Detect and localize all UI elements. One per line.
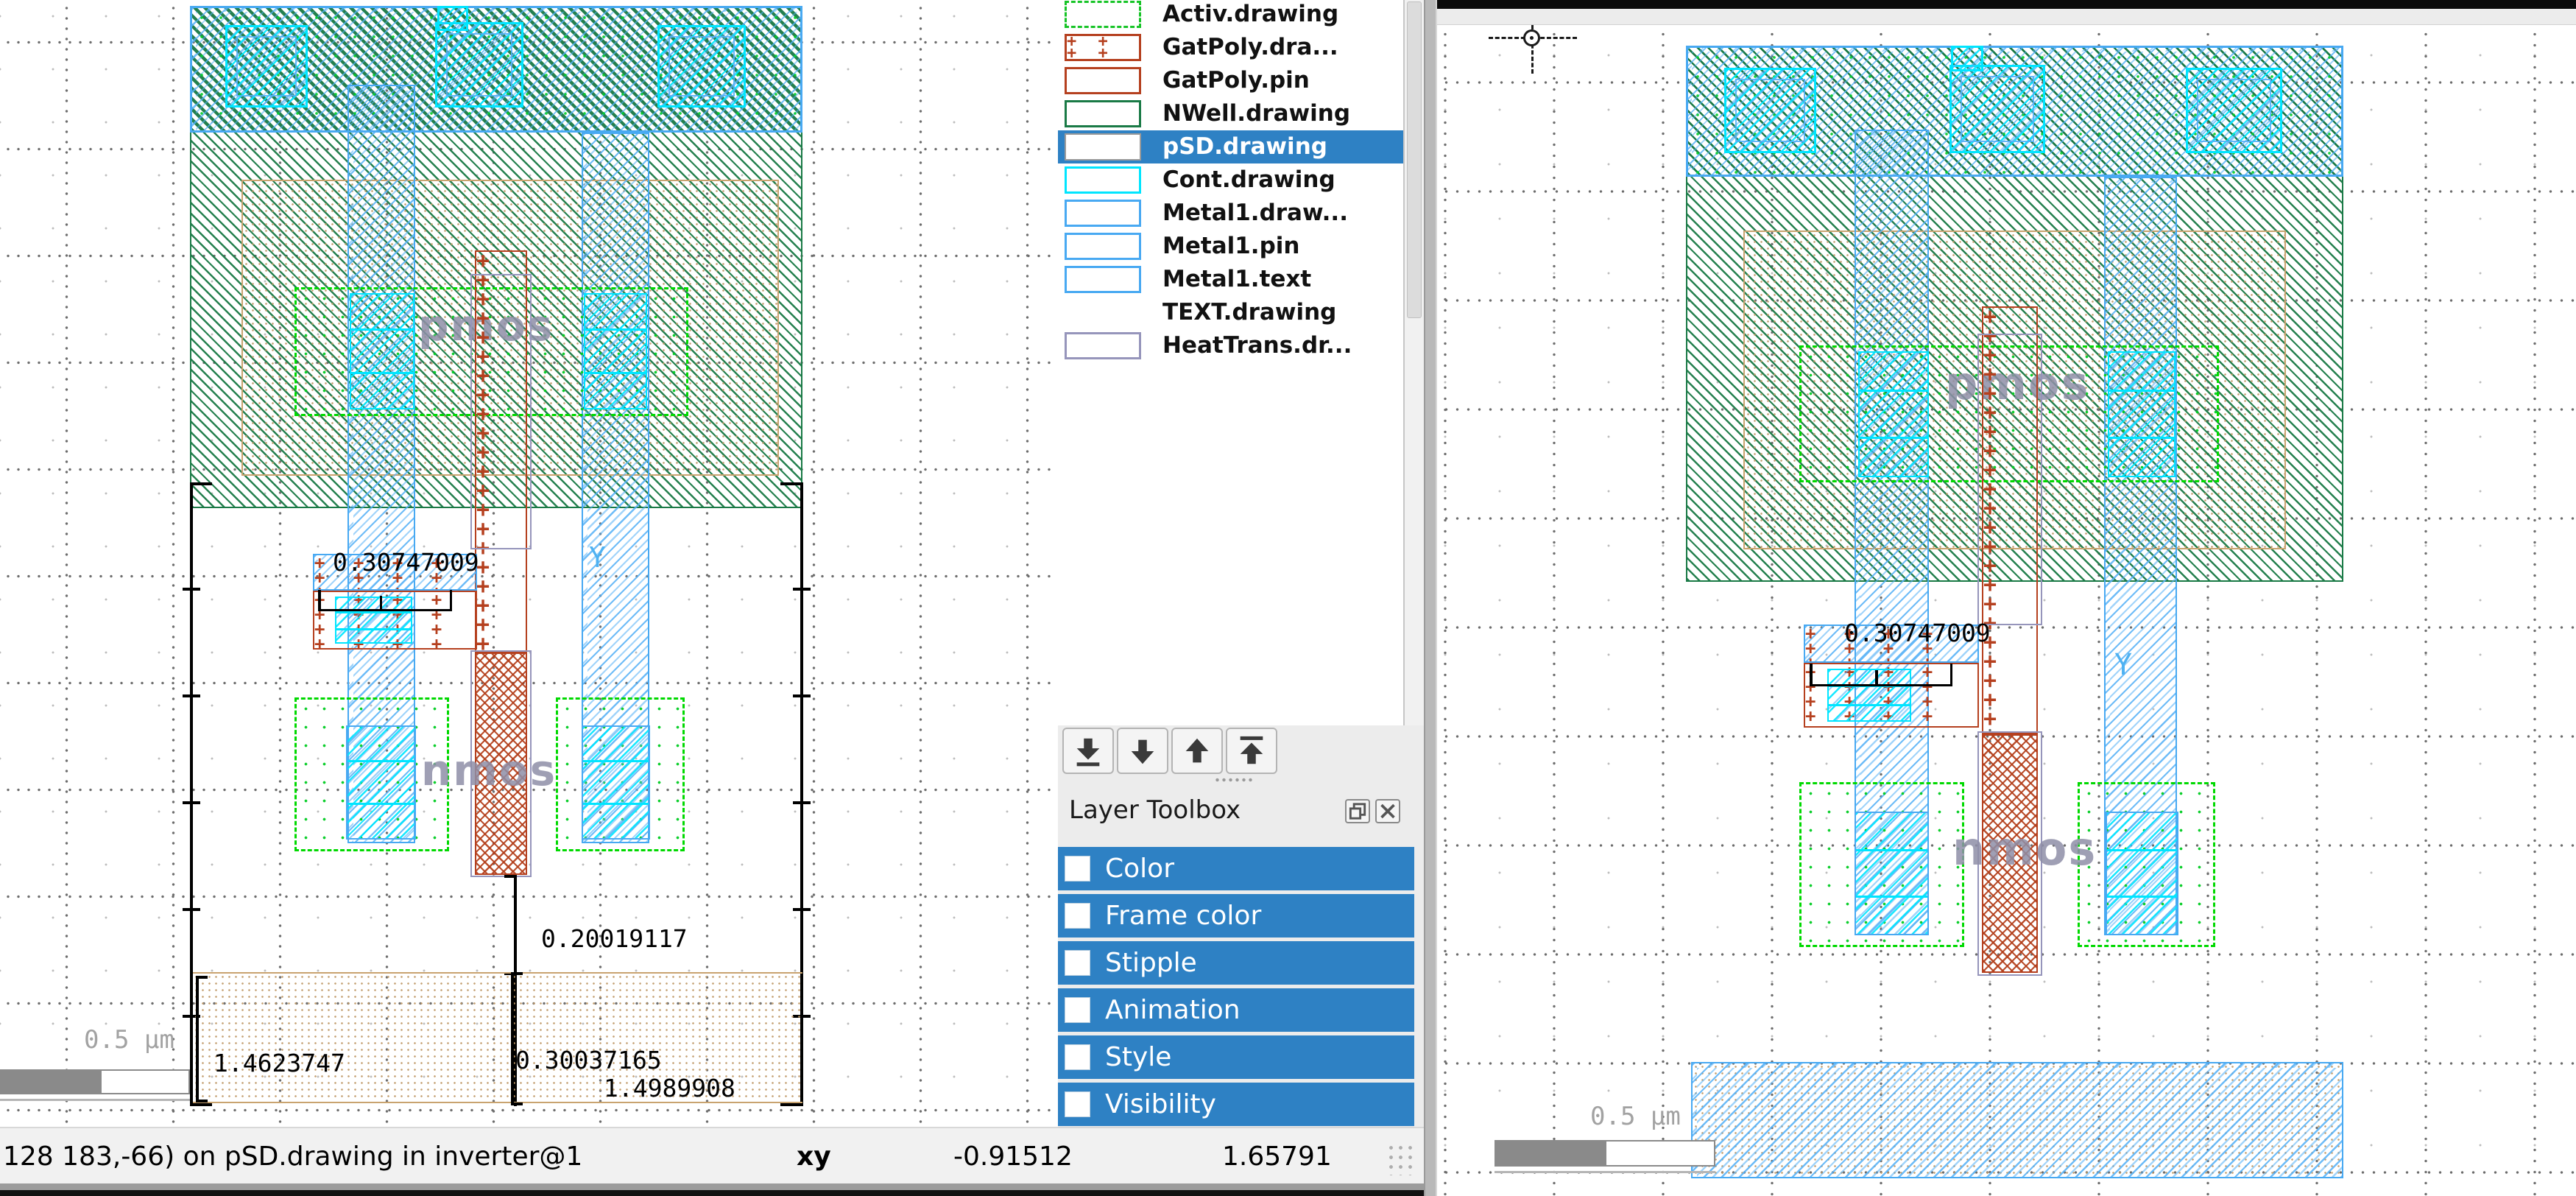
layer-move-up-button[interactable] xyxy=(1171,728,1223,774)
metal1-bottom-rail[interactable] xyxy=(1691,1062,2343,1178)
metal1-pin xyxy=(446,33,512,96)
nmos-contact-left[interactable] xyxy=(346,725,416,840)
arrow-up-to-line-icon xyxy=(1234,734,1269,768)
toolbox-row-animation[interactable]: Animation xyxy=(1058,988,1414,1032)
layer-row-cont[interactable]: Cont.drawing xyxy=(1058,163,1403,197)
layer-swatch xyxy=(1065,266,1141,293)
layer-row-gatpoly-drawing[interactable]: + + + + + + + + + + + + + + + + + + + + … xyxy=(1058,31,1403,64)
layer-toolbox-title: Layer Toolbox xyxy=(1069,795,1241,825)
nmos-label[interactable]: nmos xyxy=(1952,822,2097,876)
window-top-border xyxy=(1437,0,2576,9)
arrow-up-icon xyxy=(1179,734,1215,768)
toolbox-row-style[interactable]: Style xyxy=(1058,1035,1414,1079)
layer-swatch xyxy=(1065,100,1141,127)
ruler-box-left-line[interactable] xyxy=(190,482,193,1106)
heattrans-frame[interactable] xyxy=(470,274,532,549)
ruler-mini[interactable] xyxy=(318,589,452,611)
measurement-text: 0.20019117 xyxy=(541,924,688,953)
layer-swatch xyxy=(1065,1,1141,28)
scalebar xyxy=(1495,1140,1605,1167)
layer-row-nwell[interactable]: NWell.drawing xyxy=(1058,97,1403,130)
pmos-contact-left[interactable] xyxy=(1858,351,1929,477)
right-window: Y pmos + + + + + + + + + + + + + + + + +… xyxy=(1437,0,2576,1196)
left-window: Y pmos + + + + + + + + + + + + + + + + +… xyxy=(0,0,1437,1196)
layer-row-gatpoly-pin[interactable]: GatPoly.pin xyxy=(1058,64,1403,97)
scalebar xyxy=(0,1069,100,1094)
checkbox[interactable] xyxy=(1065,1044,1090,1070)
scalebar xyxy=(1605,1140,1715,1167)
contact-array[interactable] xyxy=(1949,65,2045,153)
contact-array[interactable] xyxy=(657,25,746,108)
toolbox-row-color[interactable]: Color xyxy=(1058,847,1414,890)
layer-row-heattrans[interactable]: HeatTrans.dr... xyxy=(1058,329,1403,362)
layer-move-down-button[interactable] xyxy=(1117,728,1168,774)
pmos-contact-left[interactable] xyxy=(350,293,414,409)
resize-grip-icon[interactable] xyxy=(1386,1143,1416,1175)
layer-row-psd[interactable]: pSD.drawing xyxy=(1058,130,1403,163)
toolbox-row-visibility[interactable]: Visibility xyxy=(1058,1083,1414,1126)
contact-array[interactable] xyxy=(2186,68,2282,153)
contact-array[interactable] xyxy=(435,22,523,108)
layer-swatch xyxy=(1065,332,1141,359)
nmos-contact-left[interactable] xyxy=(1855,812,1929,935)
measurement-text: 0.30747009 xyxy=(1844,619,1991,647)
metal1-text-label[interactable]: Y xyxy=(2114,648,2132,682)
measurement-text: 0.30037165 xyxy=(515,1046,662,1074)
klayout-app: Y pmos + + + + + + + + + + + + + + + + +… xyxy=(0,0,2576,1196)
metal1-pin xyxy=(236,36,297,96)
nmos-contact-right[interactable] xyxy=(2106,812,2178,935)
toolbox-row-frame-color[interactable]: Frame color xyxy=(1058,894,1414,938)
heattrans-frame[interactable] xyxy=(1977,334,2042,625)
checkbox[interactable] xyxy=(1065,1091,1090,1117)
contact-stub[interactable] xyxy=(1951,46,1983,71)
pmos-contact-right[interactable] xyxy=(2108,351,2176,477)
float-panel-icon[interactable] xyxy=(1345,799,1370,823)
ruler-mini[interactable] xyxy=(1810,663,1952,686)
arrow-down-to-line-icon xyxy=(1070,734,1106,768)
contact-stub[interactable] xyxy=(437,6,468,31)
layer-swatch xyxy=(1065,233,1141,260)
layer-swatch xyxy=(1065,200,1141,227)
pmos-contact-right[interactable] xyxy=(584,293,647,409)
close-panel-icon[interactable] xyxy=(1375,799,1400,823)
layer-row-metal1-drawing[interactable]: Metal1.draw... xyxy=(1058,197,1403,230)
layer-move-bottom-button[interactable] xyxy=(1062,728,1114,774)
scrollbar-thumb[interactable] xyxy=(1407,1,1422,318)
nmos-contact-right[interactable] xyxy=(582,725,650,840)
status-xy-label: xy xyxy=(797,1142,831,1172)
measurement-text: 1.4623747 xyxy=(214,1049,345,1077)
metal1-pin xyxy=(1961,76,2034,142)
contact-array[interactable] xyxy=(225,25,308,108)
status-y-value: 1.65791 xyxy=(1222,1142,1332,1172)
metal1-pin xyxy=(668,36,735,96)
window-top-bar xyxy=(1437,9,2576,25)
nmos-label[interactable]: nmos xyxy=(421,745,557,795)
layer-row-text-drawing[interactable]: TEXT.drawing xyxy=(1058,296,1403,329)
status-x-value: -0.91512 xyxy=(953,1142,1073,1172)
layer-swatch: + + + + + + + + + + + + + + + + + + + + … xyxy=(1065,34,1141,61)
metal1-text-label[interactable]: Y xyxy=(589,541,606,574)
layer-row-activ[interactable]: Activ.drawing xyxy=(1058,0,1403,31)
contact-array[interactable] xyxy=(1724,68,1816,153)
layer-swatch xyxy=(1065,133,1141,161)
measurement-text: 1.4989908 xyxy=(604,1074,735,1102)
layer-move-top-button[interactable] xyxy=(1226,728,1277,774)
checkbox[interactable] xyxy=(1065,950,1090,976)
checkbox[interactable] xyxy=(1065,856,1090,882)
panel-splitter-handle[interactable] xyxy=(1214,778,1255,782)
checkbox[interactable] xyxy=(1065,903,1090,929)
arrow-down-icon xyxy=(1125,734,1160,768)
measurement-text: 0.30747009 xyxy=(333,548,479,577)
window-border xyxy=(0,1190,1424,1196)
scalebar-label: 0.5 µm xyxy=(1590,1102,1681,1131)
metal1-pin xyxy=(2197,79,2271,142)
layer-list-scrollbar[interactable] xyxy=(1403,0,1424,725)
layout-canvas-left[interactable]: Y pmos + + + + + + + + + + + + + + + + +… xyxy=(0,0,1058,1134)
checkbox[interactable] xyxy=(1065,997,1090,1023)
status-bar: 128 183,-66) on pSD.drawing in inverter@… xyxy=(0,1127,1424,1183)
window-divider[interactable] xyxy=(1424,0,1437,1196)
layout-canvas-right[interactable]: Y pmos + + + + + + + + + + + + + + + + +… xyxy=(1437,25,2576,1196)
layer-swatch xyxy=(1065,166,1141,194)
layer-swatch xyxy=(1065,67,1141,94)
layer-row-metal1-text[interactable]: Metal1.text xyxy=(1058,263,1403,296)
toolbox-row-stipple[interactable]: Stipple xyxy=(1058,941,1414,985)
window-edge xyxy=(0,1183,1424,1190)
layer-row-metal1-pin[interactable]: Metal1.pin xyxy=(1058,230,1403,263)
layer-swatch xyxy=(1065,299,1141,326)
layer-list[interactable]: Activ.drawing + + + + + + + + + + + + + … xyxy=(1058,0,1403,725)
scalebar-label: 0.5 µm xyxy=(84,1025,174,1055)
status-message: 128 183,-66) on pSD.drawing in inverter@… xyxy=(3,1142,582,1172)
metal1-pin xyxy=(1735,79,1805,142)
scalebar xyxy=(100,1069,190,1094)
